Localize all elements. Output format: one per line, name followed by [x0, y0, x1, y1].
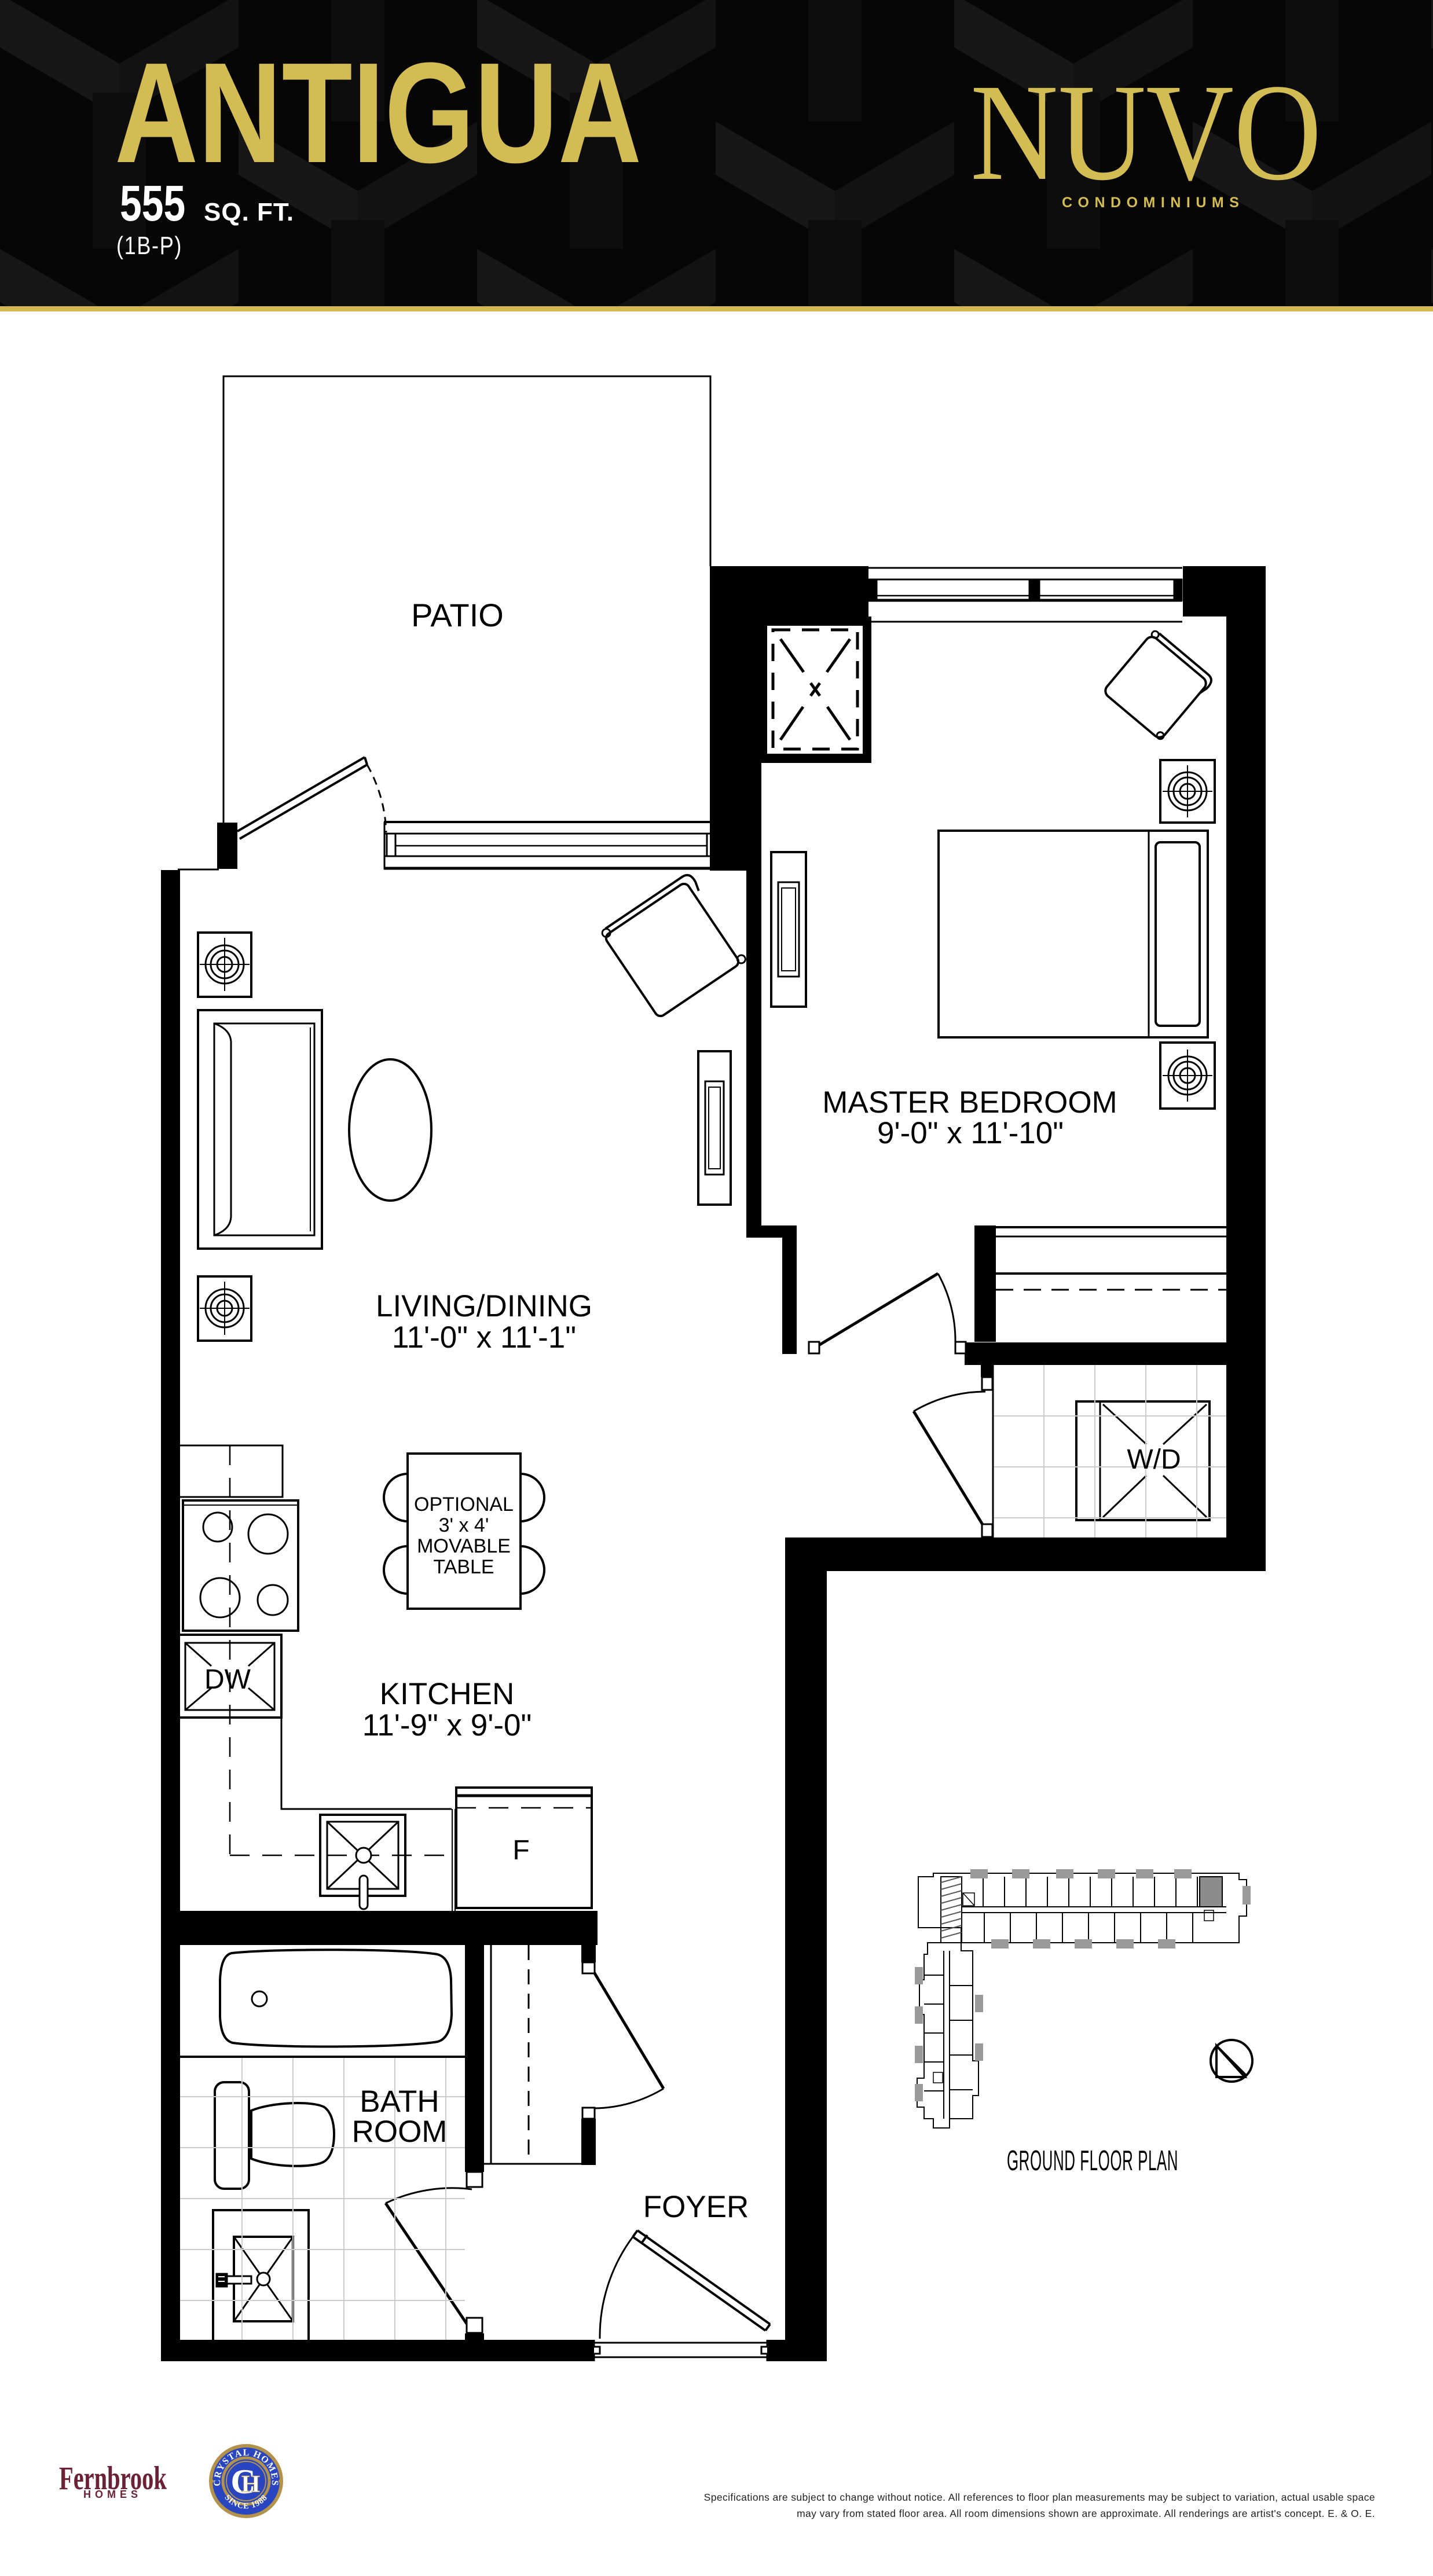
svg-text:DW: DW: [204, 1664, 251, 1695]
svg-text:MASTER BEDROOM: MASTER BEDROOM: [822, 1085, 1117, 1120]
svg-text:9'-0" x 11'-10": 9'-0" x 11'-10": [877, 1116, 1064, 1150]
svg-text:FOYER: FOYER: [643, 2190, 749, 2224]
svg-text:MOVABLE: MOVABLE: [417, 1535, 511, 1557]
svg-text:KITCHEN: KITCHEN: [380, 1677, 515, 1711]
svg-text:HOMES: HOMES: [83, 2489, 142, 2500]
svg-text:OPTIONAL: OPTIONAL: [414, 1494, 514, 1515]
svg-text:LIVING/DINING: LIVING/DINING: [376, 1289, 592, 1323]
svg-text:W/D: W/D: [1127, 1444, 1181, 1475]
svg-text:3' x 4': 3' x 4': [439, 1514, 489, 1536]
svg-text:11'-9" x 9'-0": 11'-9" x 9'-0": [362, 1708, 532, 1742]
svg-text:F: F: [512, 1835, 529, 1866]
svg-text:ANTIGUA: ANTIGUA: [115, 33, 642, 193]
svg-text:TABLE: TABLE: [433, 1556, 494, 1578]
svg-text:PATIO: PATIO: [411, 597, 504, 633]
svg-text:may vary from stated floor are: may vary from stated floor area. All roo…: [797, 2508, 1375, 2519]
svg-text:(1B-P): (1B-P): [116, 232, 182, 260]
svg-text:555: 555: [120, 175, 185, 232]
svg-text:Specifications are subject to: Specifications are subject to change wit…: [704, 2491, 1375, 2503]
svg-text:11'-0" x 11'-1": 11'-0" x 11'-1": [392, 1320, 576, 1355]
svg-text:NUVO: NUVO: [970, 55, 1322, 209]
svg-text:CONDOMINIUMS: CONDOMINIUMS: [1062, 195, 1244, 211]
svg-text:BATH: BATH: [360, 2085, 439, 2119]
svg-text:ROOM: ROOM: [352, 2115, 448, 2149]
svg-text:GROUND FLOOR PLAN: GROUND FLOOR PLAN: [1007, 2146, 1178, 2177]
svg-text:SQ. FT.: SQ. FT.: [204, 198, 294, 226]
svg-text:H: H: [241, 2471, 261, 2498]
